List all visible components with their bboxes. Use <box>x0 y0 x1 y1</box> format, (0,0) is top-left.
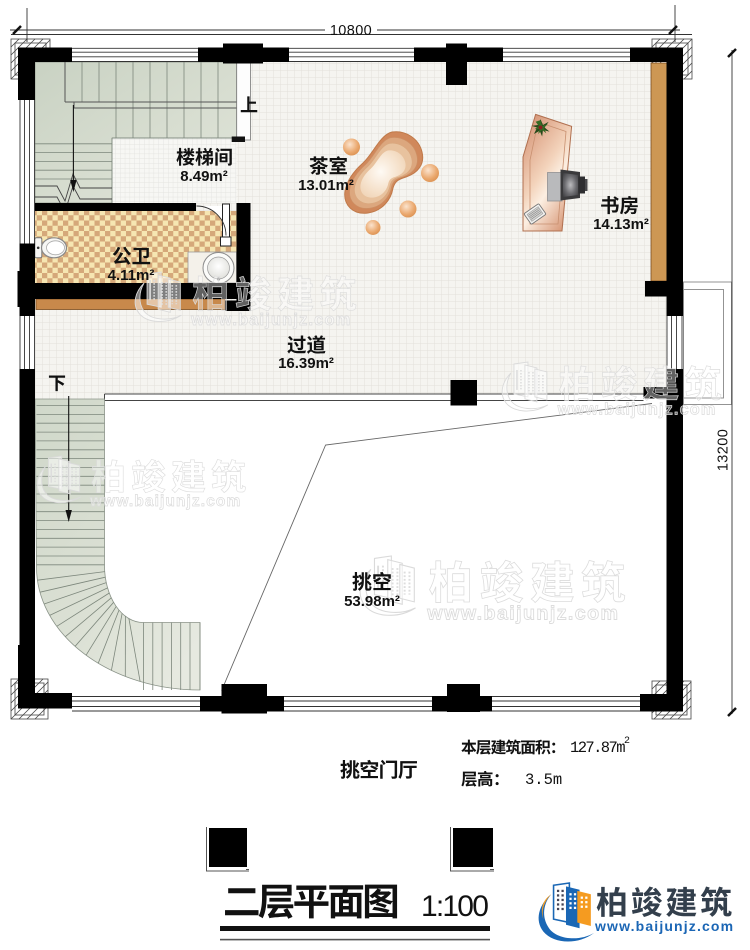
svg-text:www.baijunjz.com: www.baijunjz.com <box>557 401 717 419</box>
svg-text:13.01m²: 13.01m² <box>298 177 354 194</box>
svg-text:www.baijunjz.com: www.baijunjz.com <box>89 493 241 510</box>
svg-text:4.11m²: 4.11m² <box>108 267 155 284</box>
svg-text:8.49m²: 8.49m² <box>180 168 228 185</box>
svg-text:13200: 13200 <box>716 429 732 471</box>
svg-text:1:100: 1:100 <box>421 890 488 923</box>
svg-text:2: 2 <box>624 736 630 747</box>
svg-text:3.5m: 3.5m <box>525 771 562 789</box>
svg-text:14.13m²: 14.13m² <box>593 216 649 233</box>
svg-text:www.baijunjz.com: www.baijunjz.com <box>190 311 351 329</box>
svg-text:16.39m²: 16.39m² <box>278 355 334 372</box>
svg-text:10800: 10800 <box>330 23 372 39</box>
svg-text:53.98m²: 53.98m² <box>344 593 400 610</box>
svg-text:127.87m: 127.87m <box>570 739 625 757</box>
svg-text:www.baijunjz.com: www.baijunjz.com <box>426 603 619 625</box>
svg-text:www.baijunjz.com: www.baijunjz.com <box>594 918 734 934</box>
